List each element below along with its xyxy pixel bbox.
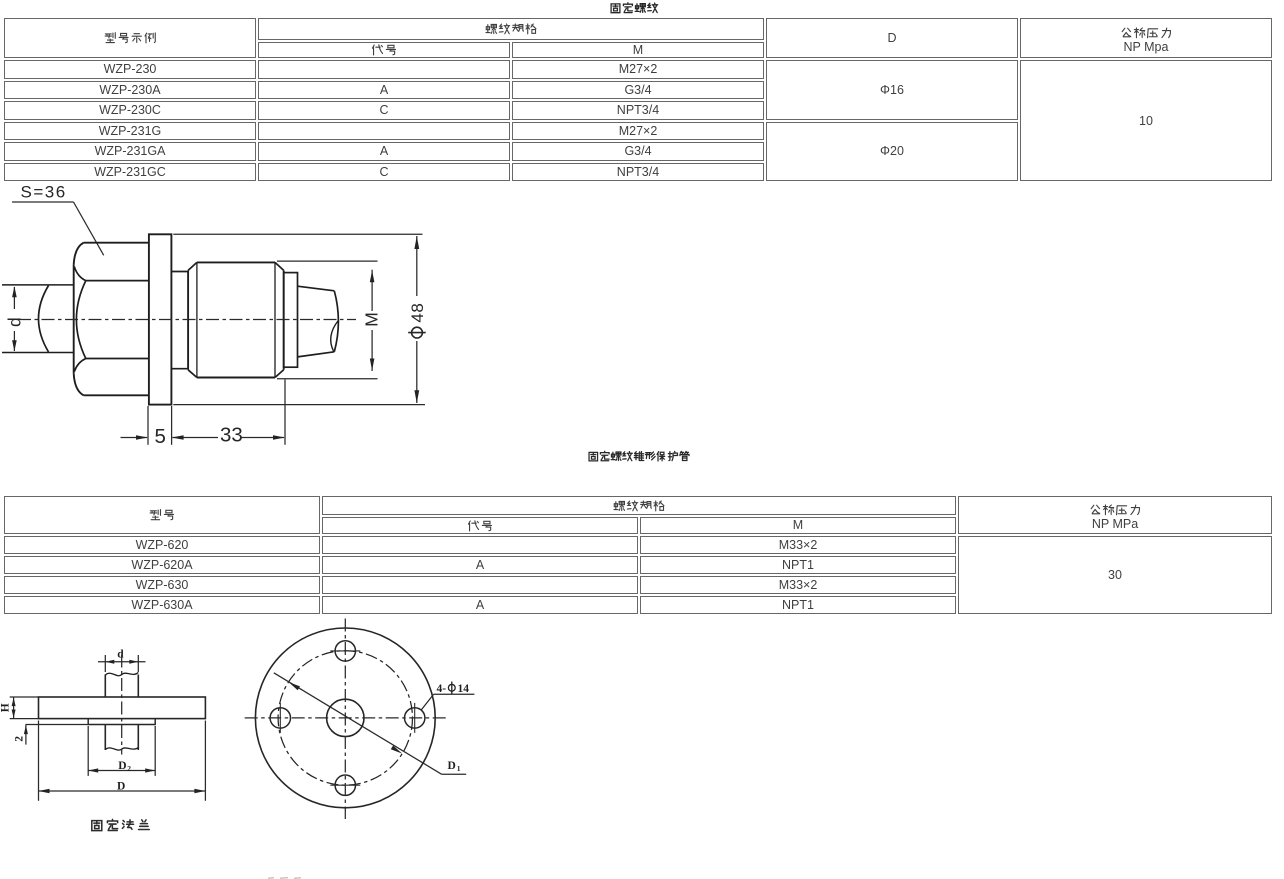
svg-text:4-: 4- — [437, 683, 447, 695]
svg-text:48: 48 — [408, 303, 427, 323]
svg-text:2: 2 — [127, 764, 131, 773]
svg-text:D: D — [448, 760, 456, 772]
svg-text:H: H — [0, 703, 12, 712]
svg-text:d: d — [117, 649, 124, 661]
svg-text:S=36: S=36 — [21, 183, 67, 202]
svg-text:D: D — [118, 760, 126, 772]
svg-text:M: M — [362, 312, 382, 327]
svg-text:d: d — [4, 317, 24, 327]
svg-text:2: 2 — [13, 736, 25, 742]
svg-text:33: 33 — [220, 424, 243, 447]
svg-text:1: 1 — [457, 764, 461, 773]
svg-text:5: 5 — [155, 425, 166, 448]
svg-text:D: D — [117, 780, 125, 792]
svg-text:14: 14 — [458, 683, 470, 695]
